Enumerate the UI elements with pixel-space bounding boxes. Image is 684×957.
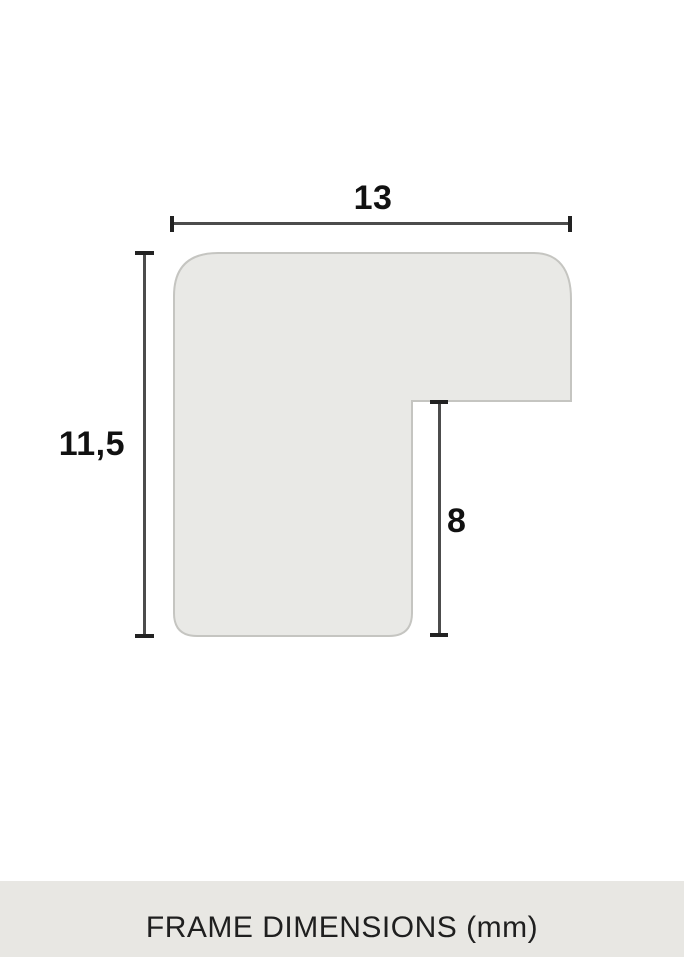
height-dimension-tick-bottom [135, 634, 154, 638]
frame-profile-shape [0, 0, 684, 957]
width-dimension-label: 13 [333, 181, 413, 215]
rabbet-dimension-label: 8 [447, 504, 497, 538]
rabbet-dimension-tick-bottom [430, 633, 448, 637]
rabbet-dimension-line [438, 402, 441, 637]
rabbet-dimension-tick-top [430, 400, 448, 404]
height-dimension-label: 11,5 [28, 427, 125, 461]
width-dimension-line [172, 222, 572, 225]
height-dimension-line [143, 252, 146, 637]
footer-caption-text: FRAME DIMENSIONS (mm) [146, 911, 538, 945]
width-dimension-tick-left [170, 216, 174, 232]
footer-caption-bar: FRAME DIMENSIONS (mm) [0, 881, 684, 957]
frame-dimensions-diagram: 13 11,5 8 FRAME DIMENSIONS (mm) [0, 0, 684, 957]
height-dimension-tick-top [135, 251, 154, 255]
frame-profile-path [174, 253, 571, 636]
width-dimension-tick-right [568, 216, 572, 232]
